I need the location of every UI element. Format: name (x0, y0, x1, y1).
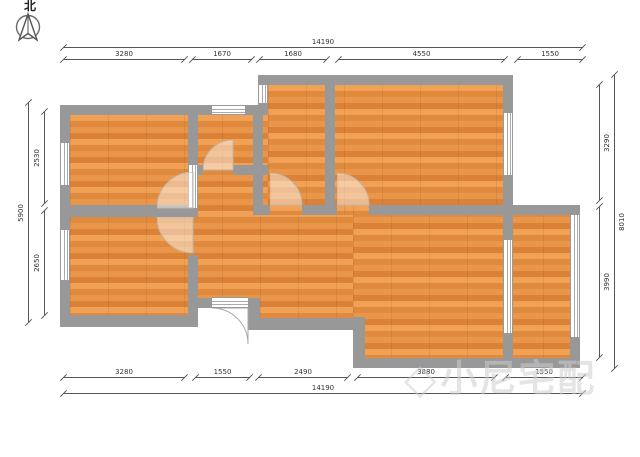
wall-bottom-middle (248, 318, 353, 330)
wall-balcony-top (503, 205, 580, 215)
dimension-right-seg-1: 3290 (599, 85, 600, 200)
dimension-top-seg-5: 1550 (517, 59, 583, 60)
wall-top-right (258, 75, 513, 85)
dimension-bottom-seg-4: 3880 (357, 377, 495, 378)
dimension-label: 2530 (34, 149, 41, 167)
dimension-label: 1670 (213, 51, 231, 58)
dimension-top-seg-4: 4550 (338, 59, 505, 60)
wall-bottom-left (60, 315, 198, 327)
door-arc-entry (212, 308, 249, 345)
dimension-left-seg-1: 2530 (44, 112, 45, 203)
dimension-top-seg-1: 3280 (63, 59, 185, 60)
dimension-label: 1680 (284, 51, 302, 58)
window-right-outer (570, 215, 580, 337)
dimension-bottom-seg-3: 2490 (258, 377, 348, 378)
dimension-label: 4550 (413, 51, 431, 58)
dimension-label: 3290 (604, 134, 611, 152)
door-arc-bottom-left-room (157, 217, 194, 254)
dimension-label: 8010 (619, 213, 626, 231)
wall-topright-bottom-b (302, 205, 337, 215)
dimension-right-seg-2: 3990 (599, 207, 600, 357)
dimension-right-total: 8010 (614, 75, 615, 368)
dimension-label: 14190 (312, 39, 334, 46)
dimension-bottom-seg-1: 3280 (63, 377, 185, 378)
window-step-wall (258, 85, 268, 103)
door-arc-top-left-room (157, 172, 194, 209)
dimension-top-seg-2: 1670 (192, 59, 252, 60)
window-balcony-divider (503, 240, 513, 333)
wall-bottom-right (353, 358, 580, 368)
dimension-label: 1550 (541, 51, 559, 58)
dimension-left-seg-2: 2650 (44, 211, 45, 315)
dimension-bottom-total: 14190 (63, 393, 583, 394)
wall-topright-bottom-a (253, 205, 270, 215)
door-arc-topright-big-room (337, 173, 370, 206)
wall-entry-right (248, 298, 260, 330)
dimension-bottom-seg-2: 1550 (195, 377, 250, 378)
door-arc-topright-small-room (270, 173, 303, 206)
dimension-label: 3990 (604, 273, 611, 291)
floor-living-and-balcony (353, 205, 570, 358)
window-top-bath (212, 105, 245, 115)
wall-hall-divider-upper (188, 105, 198, 165)
wall-balcony-divider-lower (503, 333, 513, 368)
dimension-label: 14190 (312, 385, 334, 392)
compass: 北 (8, 0, 52, 44)
dimension-label: 1550 (535, 369, 553, 376)
window-left-bottom (60, 230, 70, 280)
dimension-top-total: 14190 (63, 47, 583, 48)
window-left-top (60, 143, 70, 185)
dimension-label: 3880 (417, 369, 435, 376)
dimension-left-total: 5900 (28, 103, 29, 322)
dimension-bottom-seg-5: 1550 (505, 377, 583, 378)
dimension-label: 1550 (214, 369, 232, 376)
wall-topright-divider (325, 85, 335, 205)
floor-plan-canvas: 14190 3280 1670 1680 4550 1550 3280 1550… (0, 0, 640, 457)
floor-top-right-rooms (268, 85, 503, 215)
window-right-upper (503, 113, 513, 175)
dimension-label: 2650 (34, 254, 41, 272)
door-leaf-entry (212, 297, 248, 308)
dimension-top-seg-3: 1680 (259, 59, 327, 60)
dimension-label: 2490 (294, 369, 312, 376)
dimension-label: 3280 (115, 51, 133, 58)
dimension-label: 3280 (115, 369, 133, 376)
wall-hall-divider-lower (188, 255, 198, 298)
wall-topright-bottom-c (369, 205, 503, 215)
door-arc-bath (203, 140, 234, 171)
wall-entry-connector (188, 298, 198, 327)
north-arrow-icon (8, 12, 52, 44)
wall-bottom-step (353, 317, 365, 368)
dimension-label: 5900 (18, 204, 25, 222)
wall-bath-right (253, 105, 263, 215)
north-label: 北 (8, 0, 52, 12)
wall-balcony-divider-upper (503, 205, 513, 240)
